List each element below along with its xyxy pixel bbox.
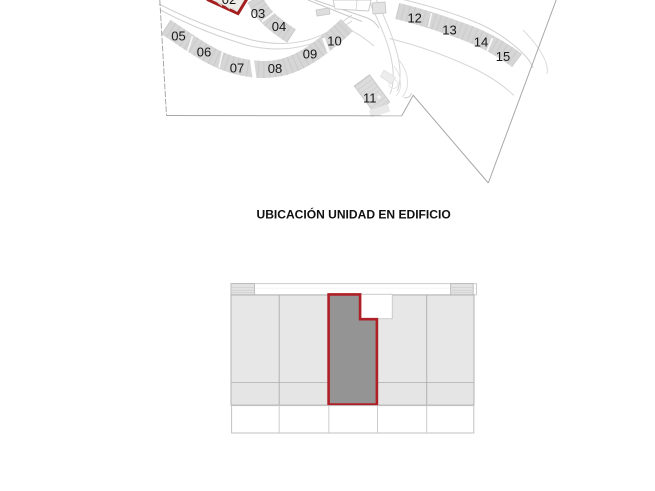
svg-text:07: 07	[230, 61, 244, 76]
svg-text:UBICACIÓN UNIDAD EN EDIFICIO: UBICACIÓN UNIDAD EN EDIFICIO	[257, 207, 451, 222]
svg-text:15: 15	[496, 49, 510, 64]
svg-text:11: 11	[363, 91, 377, 106]
svg-text:06: 06	[197, 45, 211, 60]
svg-text:12: 12	[407, 10, 421, 25]
svg-text:04: 04	[272, 19, 286, 34]
svg-text:09: 09	[303, 47, 317, 62]
svg-text:08: 08	[268, 61, 282, 76]
svg-text:13: 13	[442, 23, 456, 38]
svg-text:14: 14	[474, 35, 488, 50]
svg-text:03: 03	[251, 6, 265, 21]
svg-text:02: 02	[222, 0, 236, 7]
svg-text:05: 05	[171, 29, 185, 44]
svg-text:10: 10	[327, 34, 341, 49]
